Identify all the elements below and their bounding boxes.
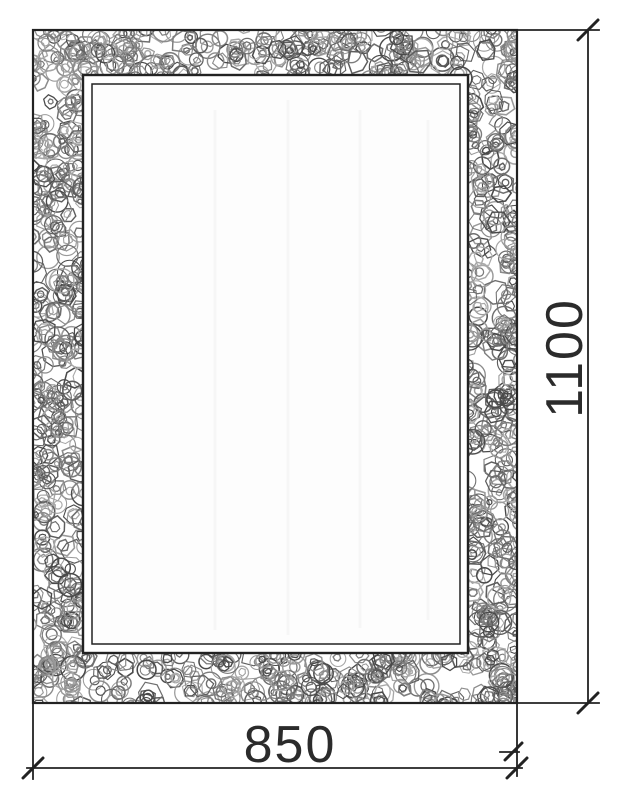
height-dimension: 1100 bbox=[517, 20, 599, 713]
height-dimension-label: 1100 bbox=[536, 298, 594, 418]
mirror-glass bbox=[92, 84, 460, 644]
drawing-page: 1100 850 bbox=[0, 0, 621, 800]
width-dimension: 850 bbox=[23, 703, 527, 779]
technical-drawing-frame-elevation: 1100 850 bbox=[0, 0, 621, 800]
width-dimension-label: 850 bbox=[244, 716, 337, 774]
